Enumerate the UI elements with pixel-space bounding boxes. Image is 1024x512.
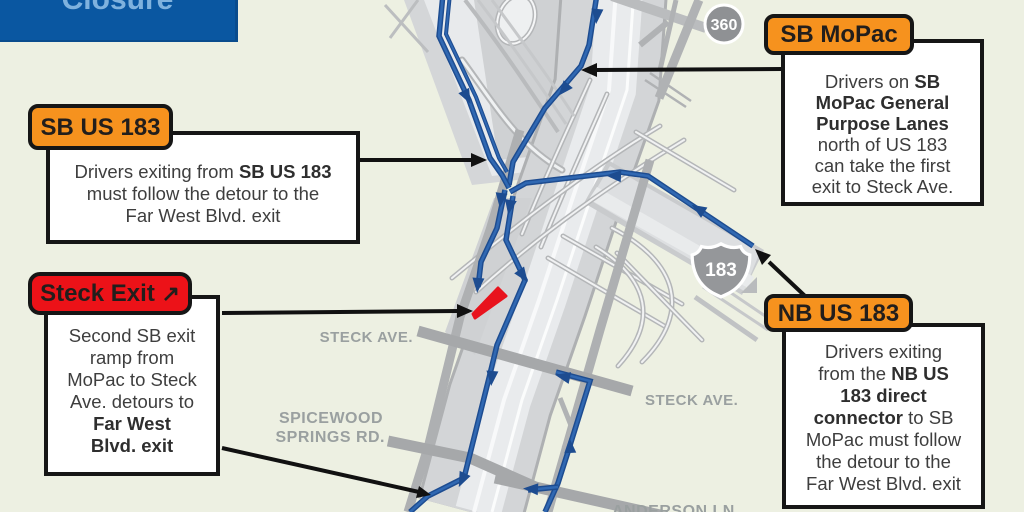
svg-text:360: 360 bbox=[711, 17, 738, 34]
svg-text:STECK AVE.: STECK AVE. bbox=[645, 392, 738, 409]
svg-text:183: 183 bbox=[705, 260, 737, 281]
svg-text:SPRINGS RD.: SPRINGS RD. bbox=[275, 429, 385, 446]
svg-text:STECK AVE.: STECK AVE. bbox=[320, 329, 413, 346]
svg-text:ANDERSON LN.: ANDERSON LN. bbox=[612, 503, 740, 512]
svg-text:SPICEWOOD: SPICEWOOD bbox=[279, 410, 383, 427]
